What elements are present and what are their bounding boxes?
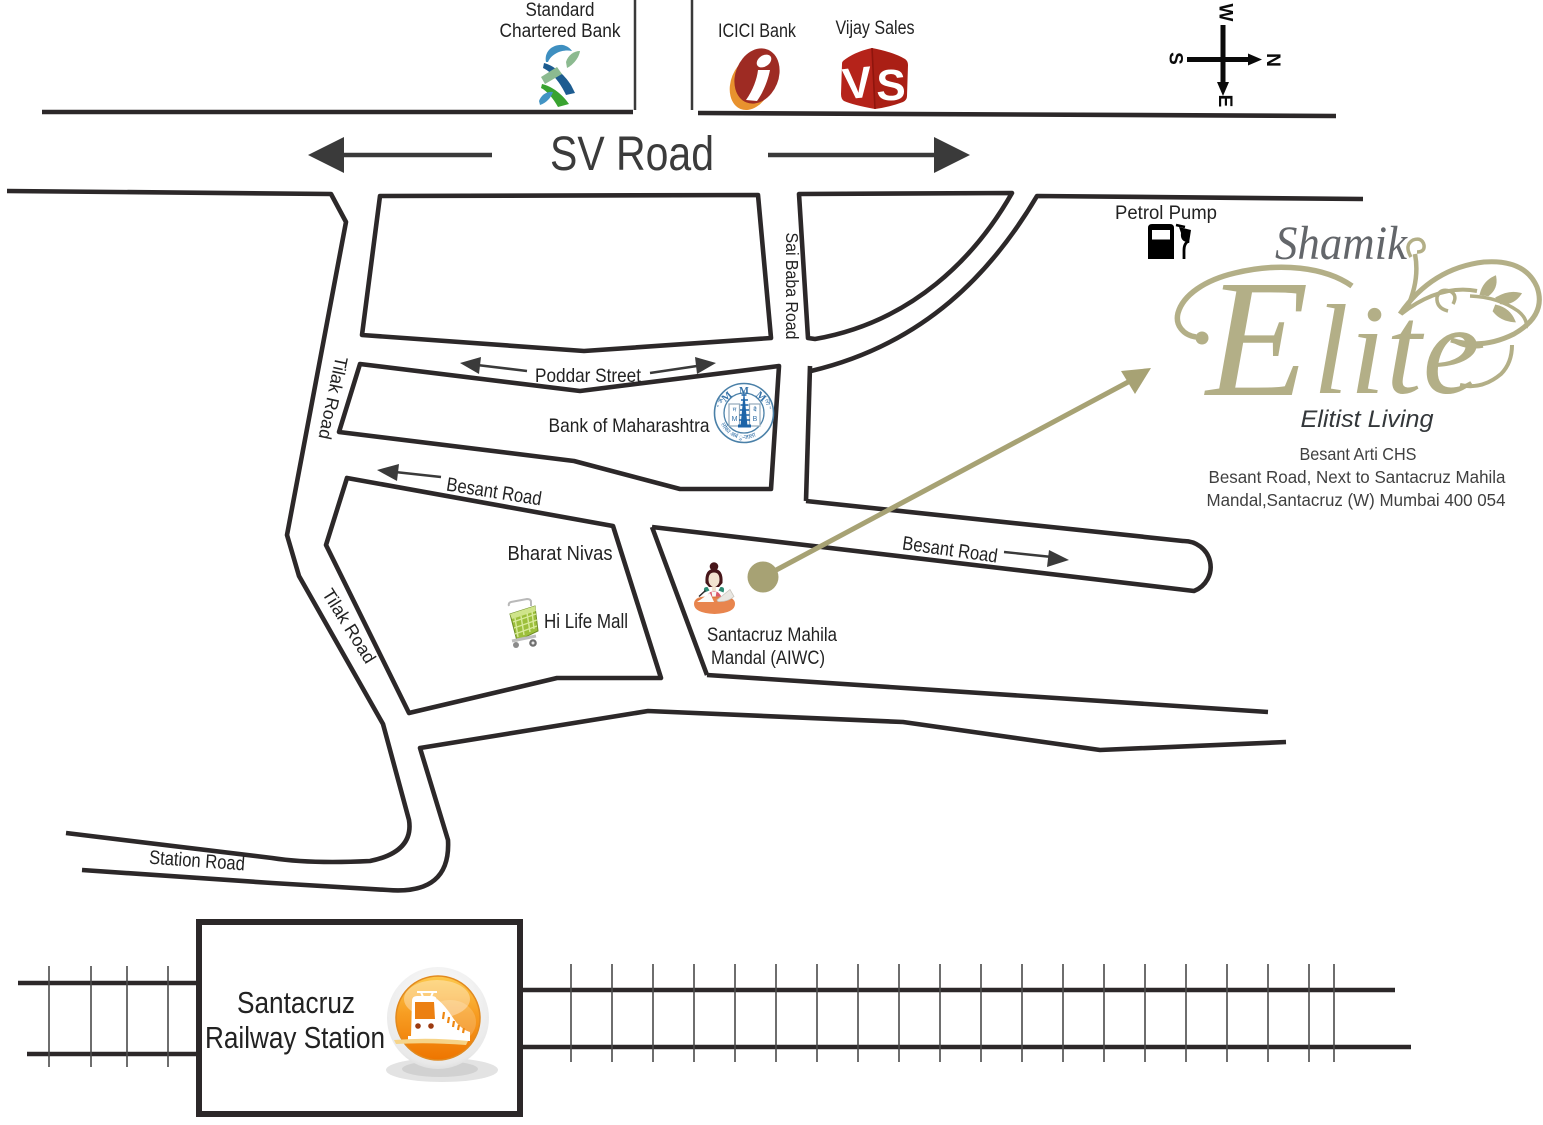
svg-text:SV Road: SV Road: [550, 128, 714, 181]
svg-text:Besant Road, Next to Santacruz: Besant Road, Next to Santacruz Mahila: [1209, 467, 1506, 487]
svg-text:बै: बै: [753, 406, 757, 414]
svg-text:Santacruz: Santacruz: [237, 985, 355, 1020]
svg-text:ICICI Bank: ICICI Bank: [718, 21, 796, 42]
svg-text:B: B: [753, 416, 758, 423]
svg-text:Elitist Living: Elitist Living: [1301, 406, 1435, 433]
svg-text:S: S: [876, 61, 905, 110]
svg-text:Railway Station: Railway Station: [205, 1020, 385, 1055]
svg-text:Mandal (AIWC): Mandal (AIWC): [711, 647, 825, 669]
svg-text:Besant Arti CHS: Besant Arti CHS: [1300, 444, 1417, 464]
svg-text:Bharat Nivas: Bharat Nivas: [508, 543, 613, 565]
svg-text:N: N: [1262, 53, 1283, 67]
svg-text:Santacruz Mahila: Santacruz Mahila: [707, 624, 837, 646]
svg-text:Vijay Sales: Vijay Sales: [836, 18, 915, 39]
svg-text:Bank of Maharashtra: Bank of Maharashtra: [549, 415, 710, 437]
svg-text:म: म: [733, 408, 737, 414]
svg-text:W: W: [1215, 4, 1236, 22]
svg-text:Standard: Standard: [526, 0, 595, 21]
svg-text:Hi Life Mall: Hi Life Mall: [544, 611, 628, 633]
svg-text:S: S: [1165, 52, 1186, 65]
svg-text:Petrol Pump: Petrol Pump: [1115, 202, 1217, 224]
svg-text:Poddar Street: Poddar Street: [535, 365, 642, 387]
svg-text:E: E: [1214, 95, 1235, 108]
svg-text:Mandal,Santacruz (W) Mumbai 40: Mandal,Santacruz (W) Mumbai 400 054: [1207, 490, 1506, 510]
svg-text:E: E: [1204, 246, 1309, 432]
svg-text:Chartered Bank: Chartered Bank: [500, 21, 621, 42]
svg-text:Sai Baba Road: Sai Baba Road: [782, 233, 802, 340]
svg-text:V: V: [840, 58, 875, 110]
svg-text:M: M: [732, 416, 738, 423]
